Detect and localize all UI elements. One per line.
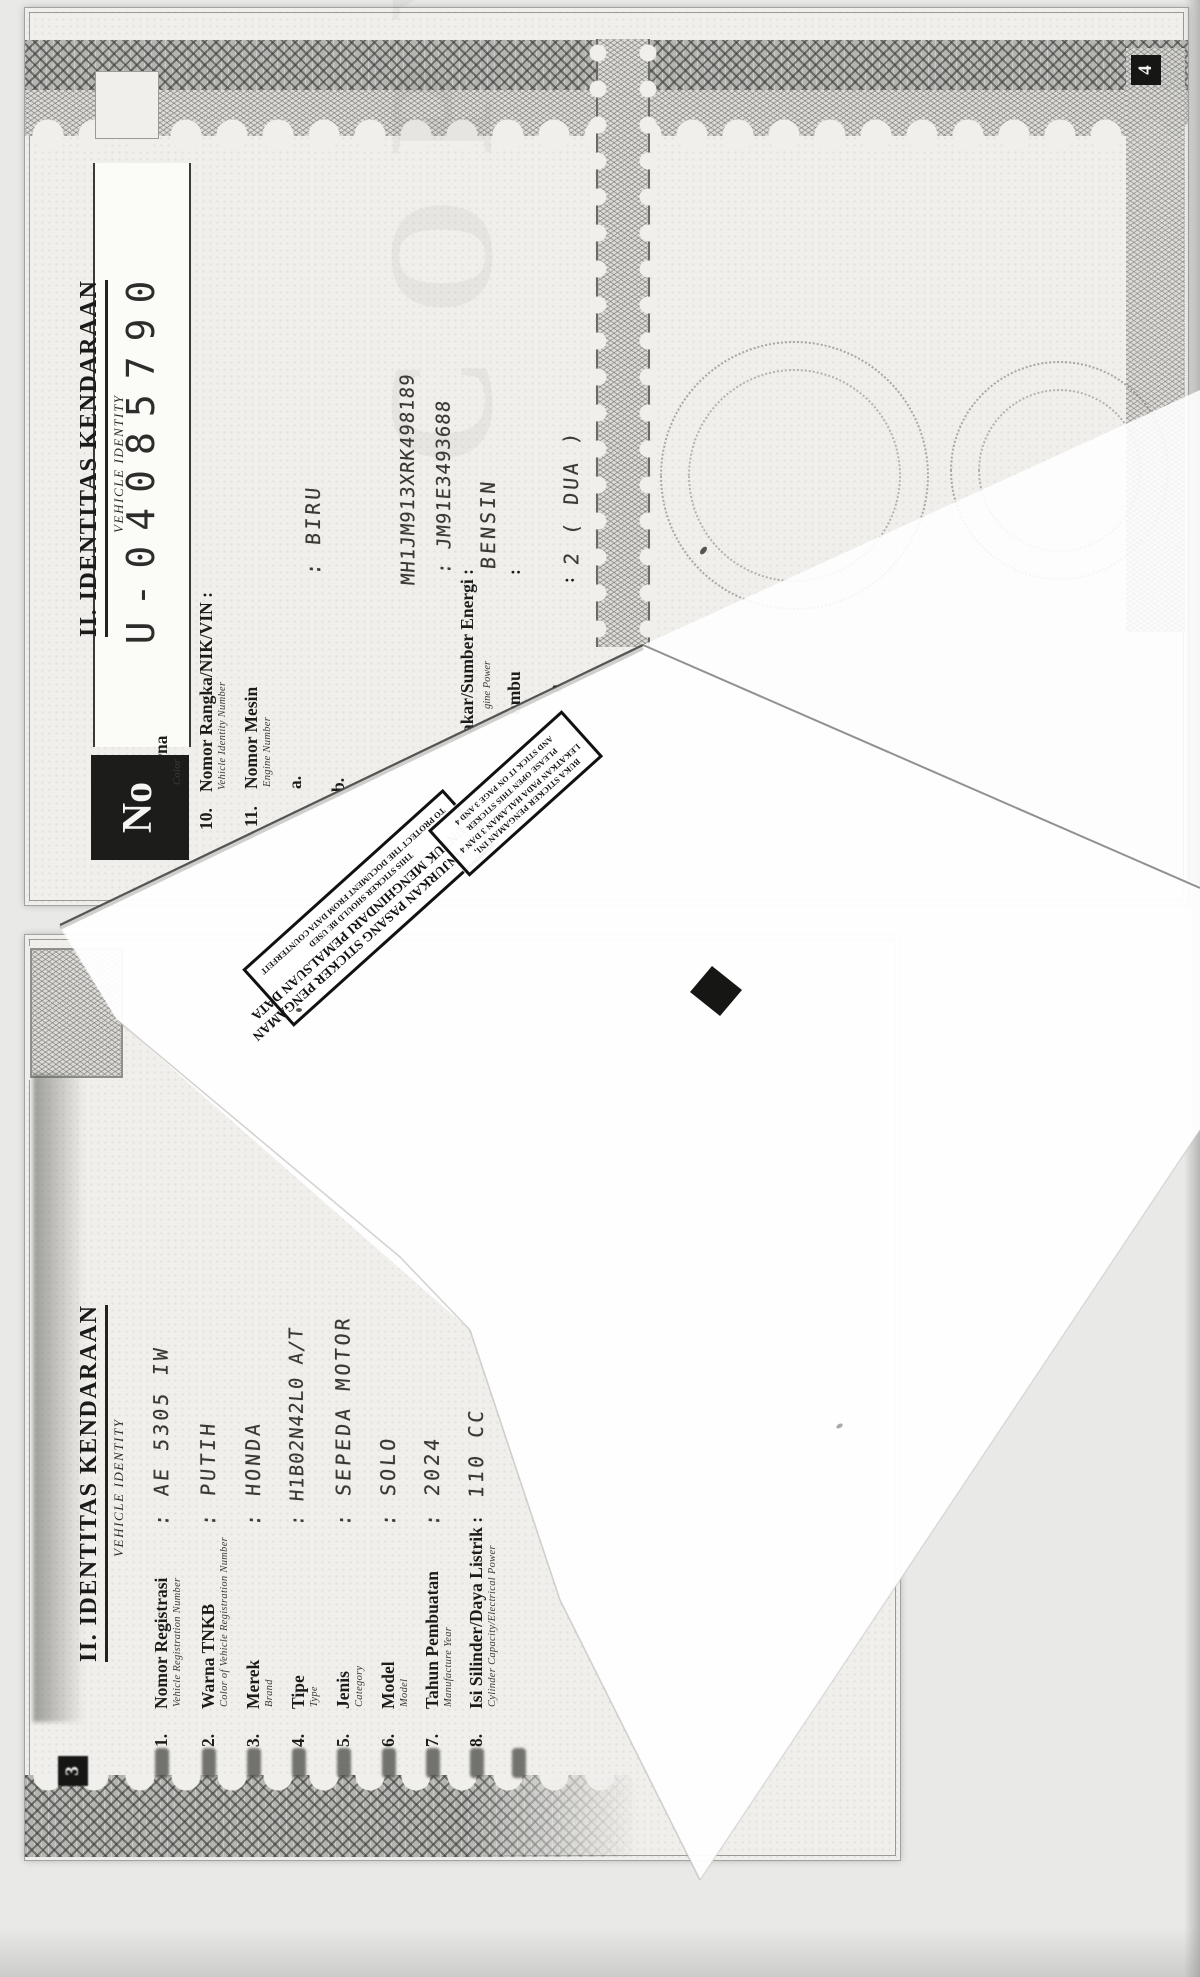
- flap-overlay: [0, 0, 1200, 1977]
- scan-speck: [296, 1008, 302, 1012]
- scanned-document: No U-04085790 II. IDENTITAS KENDARAAN VE…: [0, 0, 1200, 1977]
- flap-sheet-lower: [60, 645, 1200, 1880]
